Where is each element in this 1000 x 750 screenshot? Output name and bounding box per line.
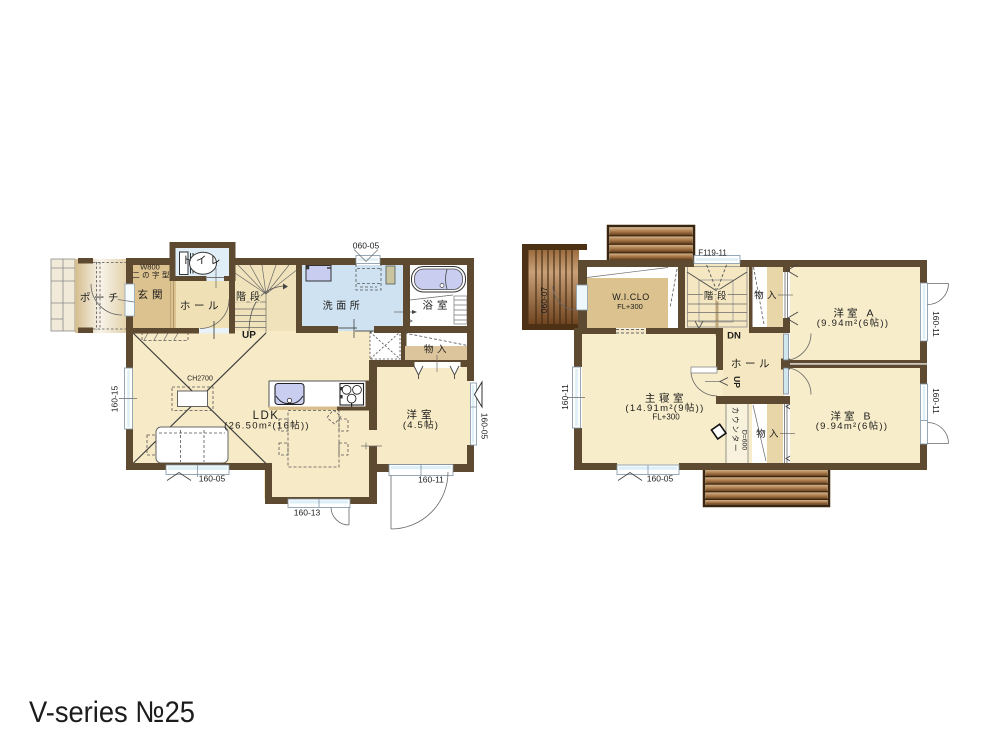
svg-text:160-11: 160-11 bbox=[560, 384, 570, 410]
svg-text:160-15: 160-15 bbox=[110, 385, 120, 412]
svg-text:(9.94m²(6帖)): (9.94m²(6帖)) bbox=[817, 317, 890, 329]
svg-text:(26.50m²(16帖)): (26.50m²(16帖)) bbox=[224, 420, 310, 432]
svg-text:(4.5帖): (4.5帖) bbox=[403, 419, 439, 431]
svg-text:FL+300: FL+300 bbox=[617, 302, 643, 311]
svg-text:階段: 階段 bbox=[704, 290, 730, 302]
svg-text:物入: 物入 bbox=[756, 428, 782, 440]
svg-text:(9.94m²(6帖)): (9.94m²(6帖)) bbox=[816, 420, 889, 432]
svg-text:W.I.CLO: W.I.CLO bbox=[612, 292, 650, 302]
svg-text:060-07: 060-07 bbox=[539, 286, 549, 313]
svg-text:階段: 階段 bbox=[236, 290, 264, 303]
svg-text:V-series №25: V-series №25 bbox=[29, 696, 195, 729]
svg-text:ホール: ホール bbox=[731, 358, 773, 370]
svg-text:物入: 物入 bbox=[754, 290, 780, 302]
svg-text:160-11: 160-11 bbox=[931, 311, 941, 337]
svg-text:CH2700: CH2700 bbox=[187, 376, 213, 383]
svg-text:160-11: 160-11 bbox=[418, 475, 444, 485]
svg-text:UP: UP bbox=[732, 376, 742, 388]
svg-text:浴室: 浴室 bbox=[423, 299, 452, 312]
svg-text:160-05: 160-05 bbox=[199, 474, 226, 484]
svg-text:玄関: 玄関 bbox=[138, 288, 167, 301]
svg-text:洗面所: 洗面所 bbox=[323, 300, 364, 312]
svg-text:物入: 物入 bbox=[424, 344, 450, 356]
svg-text:ホール: ホール bbox=[180, 300, 222, 312]
svg-text:FL+300: FL+300 bbox=[652, 413, 680, 422]
svg-text:160-05: 160-05 bbox=[647, 474, 674, 484]
svg-text:二の字型: 二の字型 bbox=[132, 270, 172, 280]
svg-text:060-05: 060-05 bbox=[353, 241, 380, 251]
svg-text:トイレ: トイレ bbox=[182, 255, 224, 267]
svg-text:160-13: 160-13 bbox=[294, 508, 321, 518]
svg-text:160-05: 160-05 bbox=[480, 413, 490, 440]
svg-text:UP: UP bbox=[242, 330, 256, 341]
svg-text:カウンター: カウンター bbox=[731, 407, 740, 454]
svg-text:F119-11: F119-11 bbox=[698, 249, 727, 258]
svg-text:160-11: 160-11 bbox=[931, 388, 941, 414]
svg-text:DN: DN bbox=[727, 331, 741, 342]
svg-text:D=600: D=600 bbox=[741, 430, 748, 450]
svg-text:ポーチ: ポーチ bbox=[80, 292, 122, 304]
